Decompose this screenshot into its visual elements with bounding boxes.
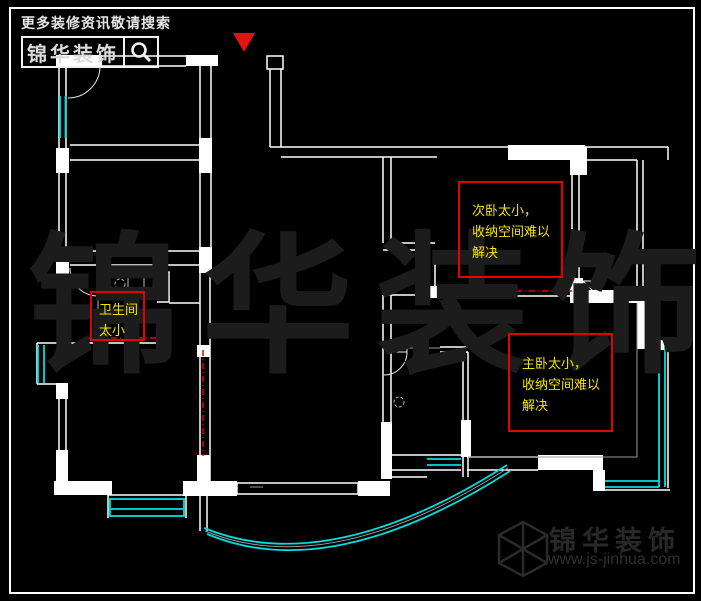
annotation-line: 主卧太小， (522, 353, 611, 374)
master-bedroom-annotation: 主卧太小， 收纳空间难以 解决 (508, 333, 613, 432)
screenshot-root: 锦华装饰 更多装修资讯敬请搜索 锦华装饰 卫生间 太小 次卧太小， 收纳空间难以… (0, 0, 701, 601)
secondary-bedroom-annotation: 次卧太小， 收纳空间难以 解决 (458, 181, 563, 278)
footer-website-text: www.js-jinhua.com (548, 551, 680, 569)
annotation-line: 解决 (472, 242, 561, 263)
annotation-line: 卫生间 (99, 299, 143, 320)
header-brand-text: 锦华装饰 (23, 38, 123, 67)
annotation-line: 收纳空间难以 (522, 374, 611, 395)
annotation-line: 收纳空间难以 (472, 221, 561, 242)
annotation-line: 解决 (522, 395, 611, 416)
magnifier-icon (125, 38, 157, 66)
annotation-line: 次卧太小， (472, 200, 561, 221)
red-triangle-marker (233, 33, 255, 52)
annotation-line: 太小 (99, 320, 143, 341)
cube-logo-icon (492, 518, 554, 580)
header-brand-box: 锦华装饰 (21, 36, 159, 68)
bathroom-annotation: 卫生间 太小 (90, 291, 145, 341)
header-tagline: 更多装修资讯敬请搜索 (21, 13, 171, 33)
